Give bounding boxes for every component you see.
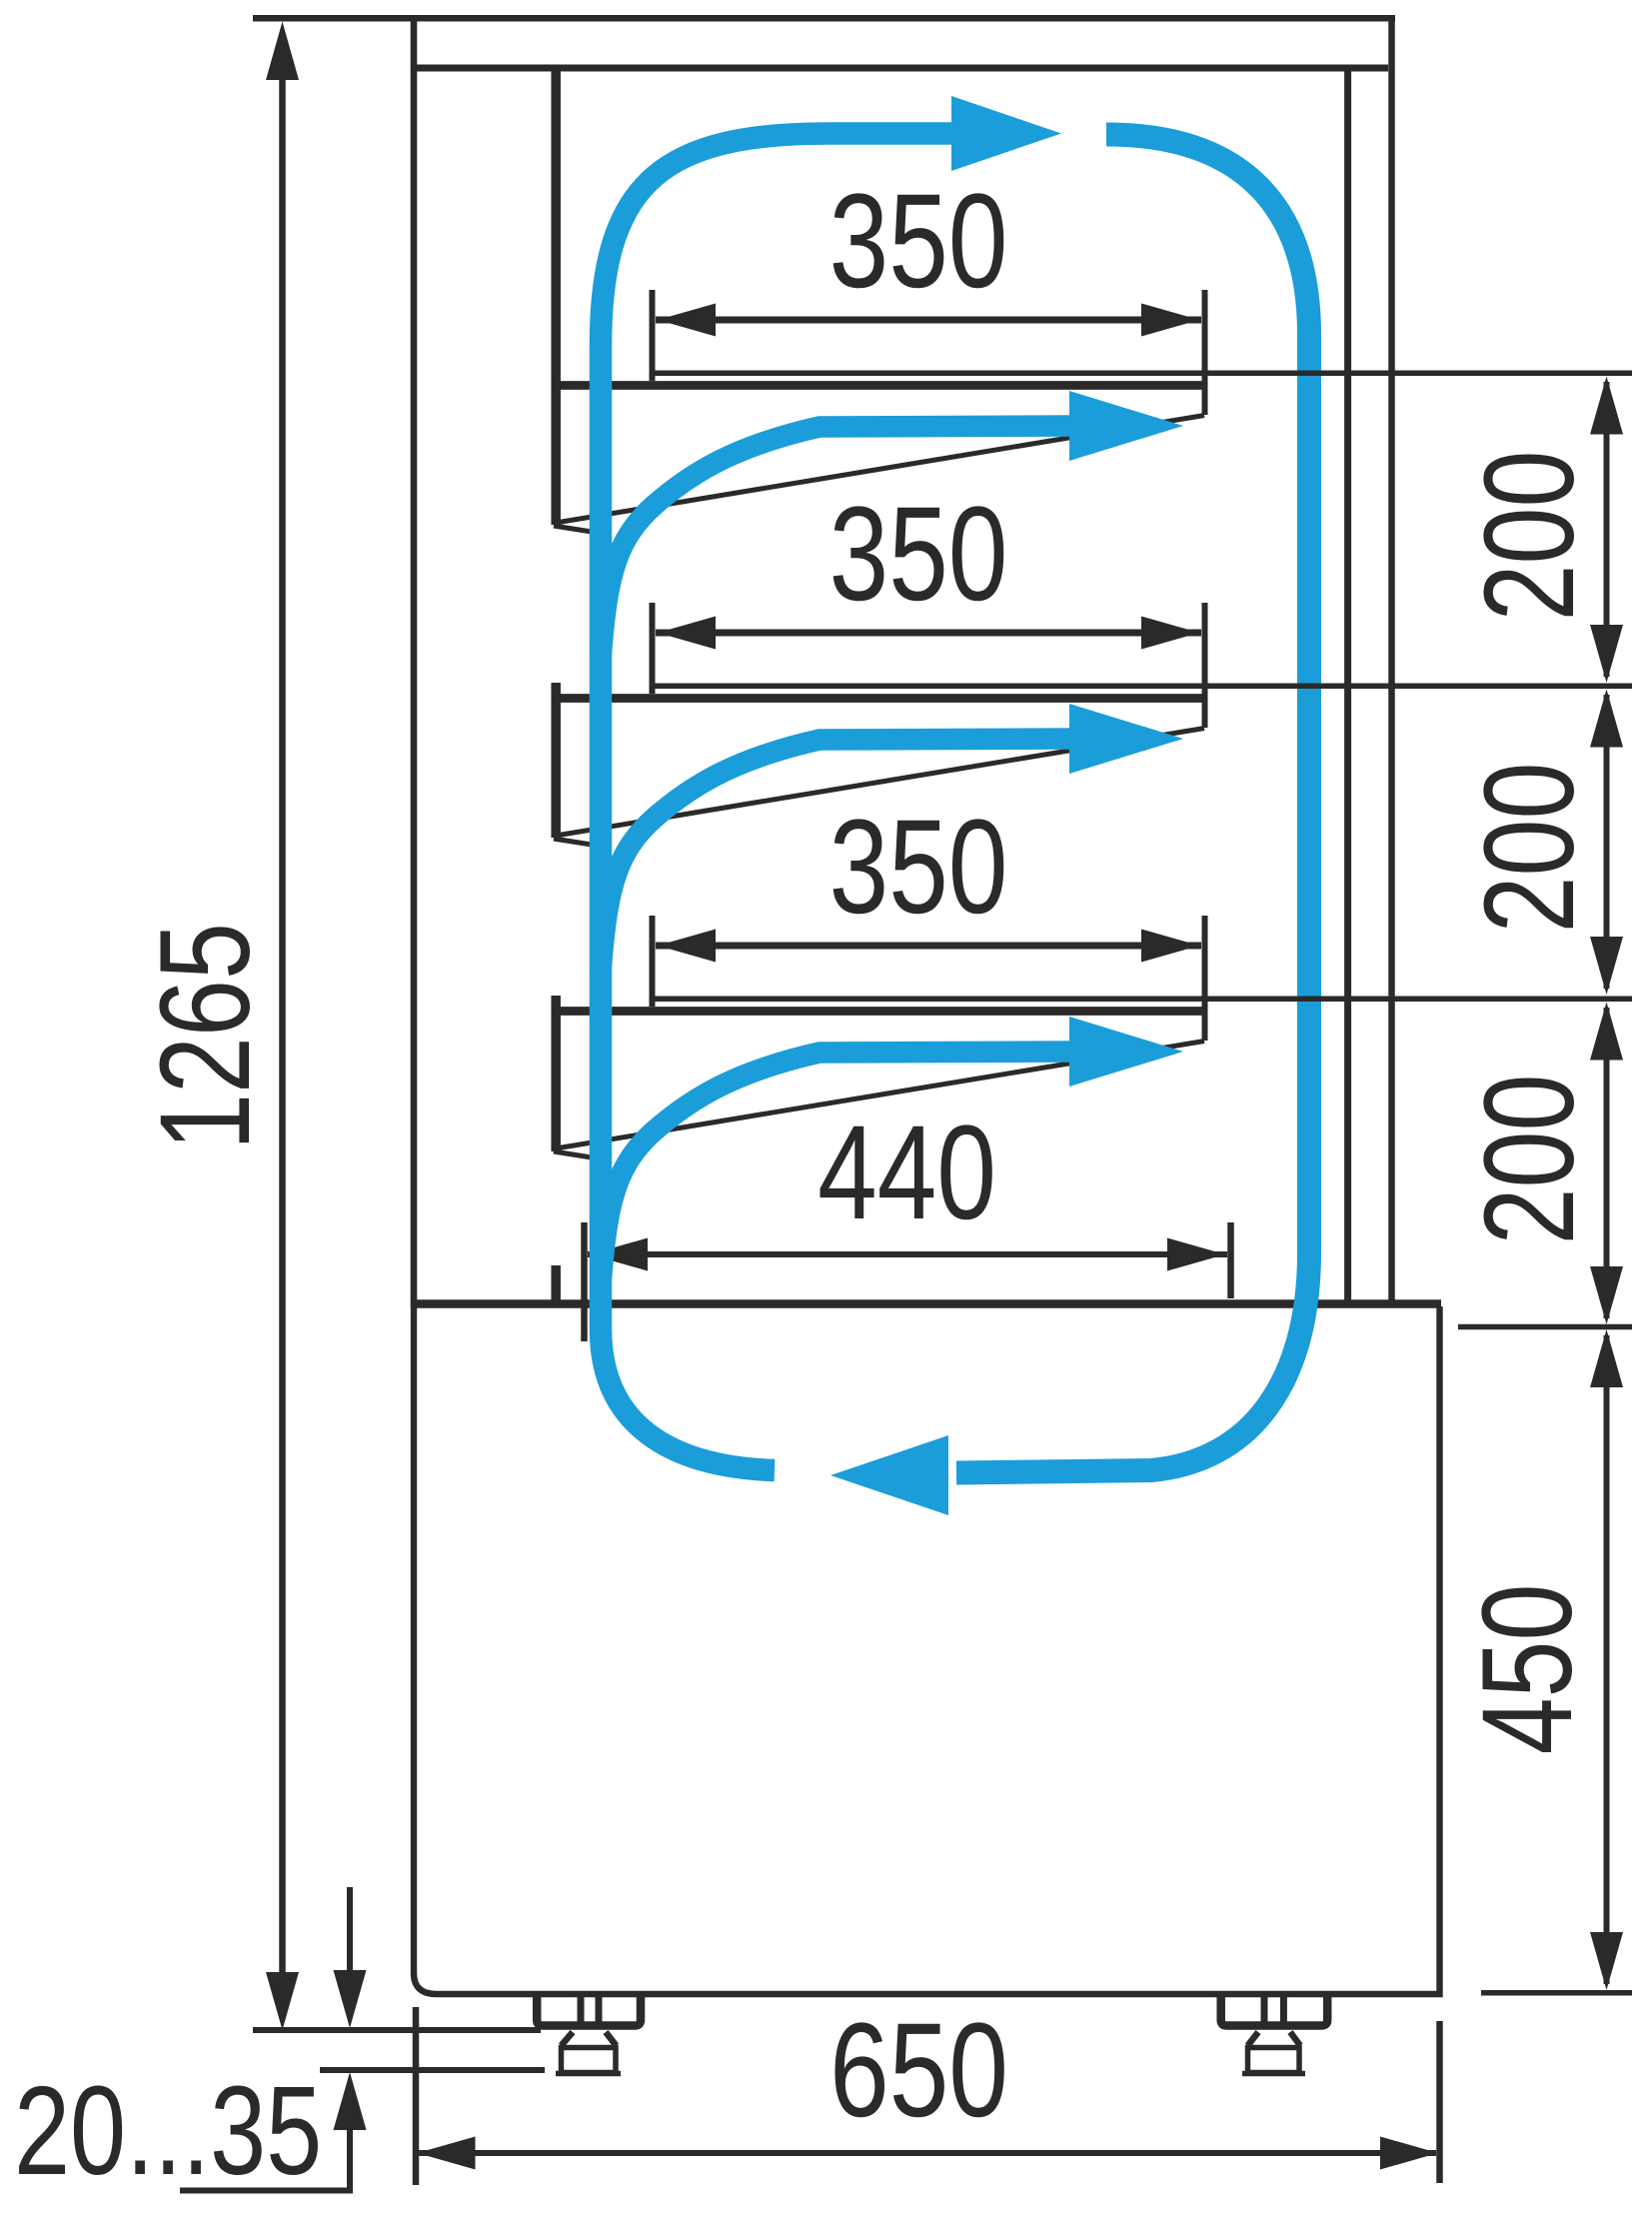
svg-text:200: 200 xyxy=(1457,451,1601,622)
svg-text:350: 350 xyxy=(829,479,1008,629)
svg-text:1265: 1265 xyxy=(133,923,277,1150)
svg-text:650: 650 xyxy=(829,1995,1008,2145)
svg-text:450: 450 xyxy=(1455,1584,1599,1755)
svg-text:350: 350 xyxy=(829,792,1008,942)
svg-text:200: 200 xyxy=(1457,763,1601,934)
svg-text:200: 200 xyxy=(1457,1075,1601,1245)
svg-text:20...35: 20...35 xyxy=(14,2061,322,2201)
svg-text:440: 440 xyxy=(818,1098,996,1247)
svg-text:350: 350 xyxy=(829,166,1008,316)
